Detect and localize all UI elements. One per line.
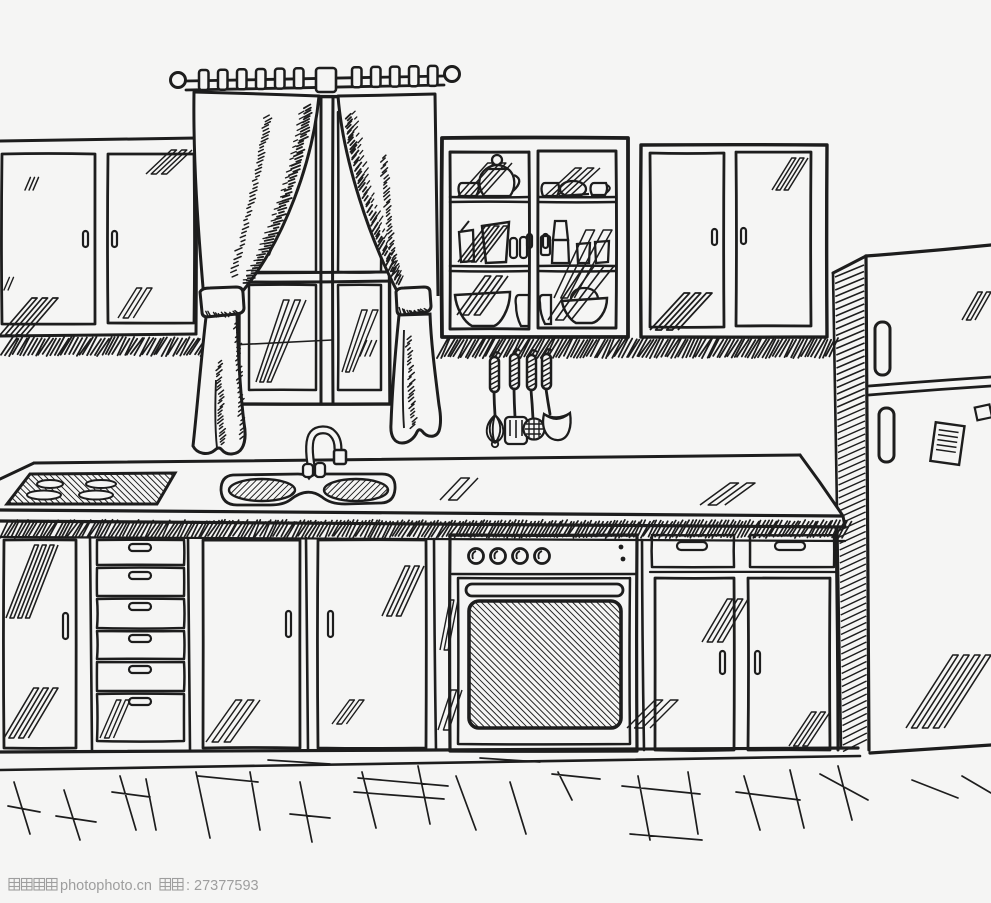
svg-text:: 27377593: : 27377593	[186, 878, 259, 894]
svg-text:photophoto.cn: photophoto.cn	[60, 878, 152, 894]
